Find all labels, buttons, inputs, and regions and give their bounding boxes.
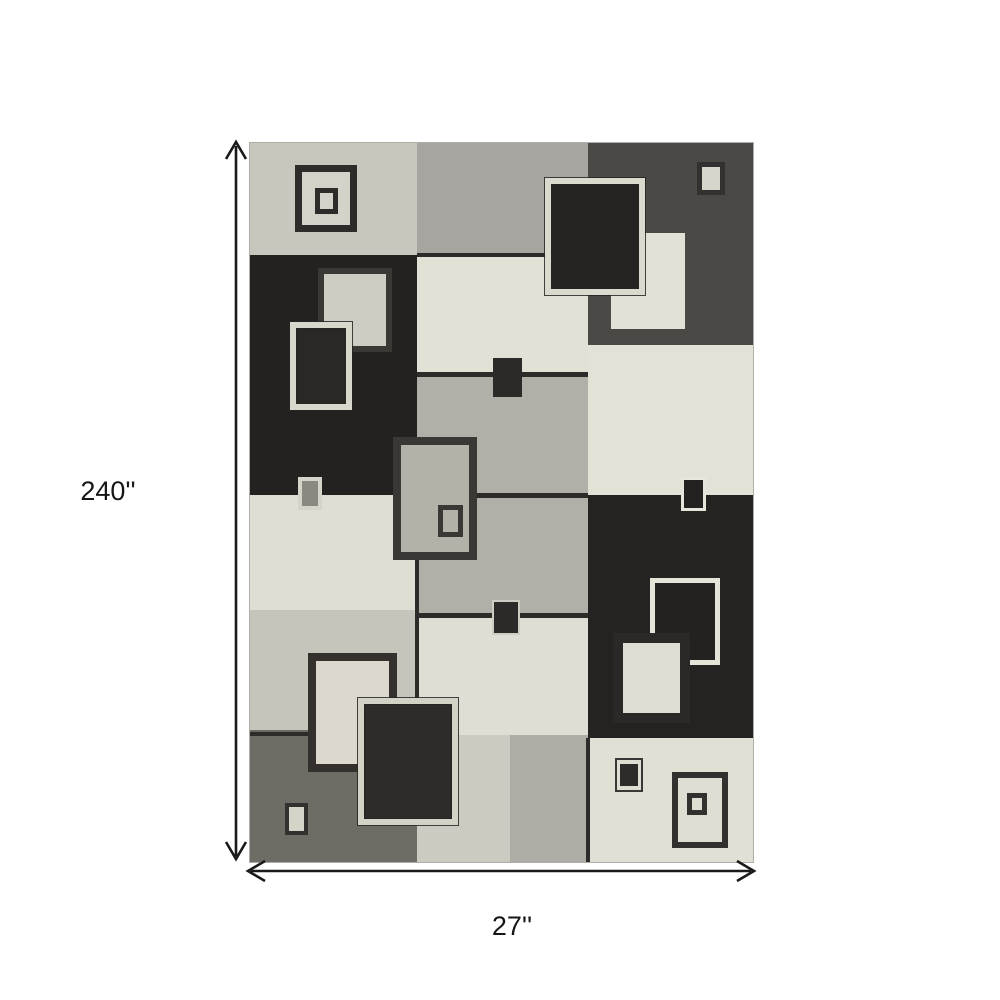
panel-gray-bottom-center <box>510 735 588 862</box>
width-dimension-arrow <box>248 861 754 881</box>
cream-bordered-dark-square <box>358 698 458 825</box>
width-dimension-label: 27'' <box>462 911 562 941</box>
dark-framed-cream-square <box>613 633 690 723</box>
gray-square-outer <box>393 437 477 560</box>
cream-bordered-dark-square <box>290 322 352 410</box>
cream-bordered-small-rect <box>298 477 322 510</box>
small-outlined-light-square <box>285 803 308 835</box>
height-dimension-label: 240'' <box>58 476 158 506</box>
outlined-square-inner <box>687 793 707 815</box>
light-bordered-dark-square <box>681 477 706 511</box>
panel-cream-right <box>588 345 753 495</box>
rug-image <box>250 143 753 862</box>
product-dimension-diagram: 240'' 27'' <box>0 0 1000 1000</box>
small-outlined-rect <box>697 162 725 195</box>
height-dimension-arrow <box>226 142 246 859</box>
small-dark-square <box>493 358 522 397</box>
outlined-square-inner <box>315 188 338 214</box>
panel-cream-left <box>250 495 417 610</box>
panel-cream-bottom-right <box>588 738 753 862</box>
gray-square-inner <box>438 505 463 537</box>
small-dark-square-core <box>620 764 638 786</box>
cream-bordered-dark-square <box>545 178 645 295</box>
rug-seam-line <box>586 738 590 862</box>
small-dark-square <box>492 600 520 635</box>
